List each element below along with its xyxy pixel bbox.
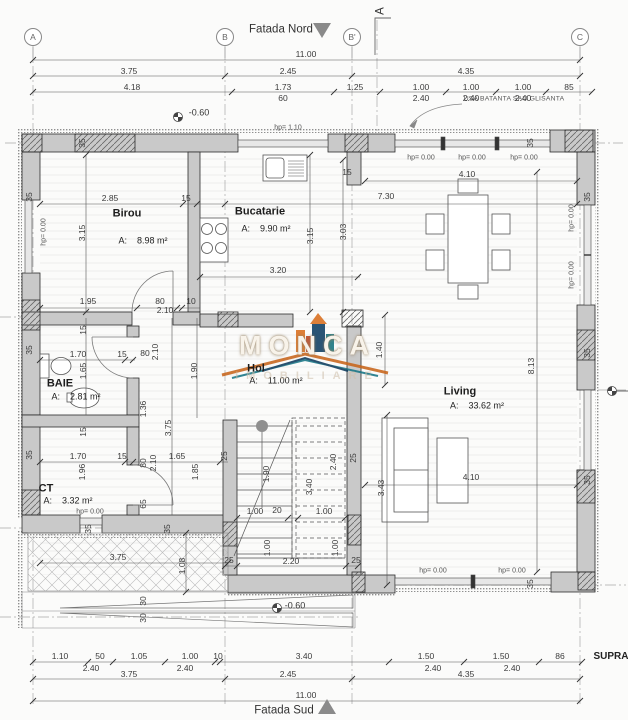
dining-table [448,195,488,283]
section-bracket [375,18,391,55]
door-note-leader [410,104,462,128]
coffee-table [437,438,468,503]
toilet-tank [40,354,49,378]
floor-plan-page: Fatada NordFatada SudSUPRAABB'CAUSA BATA… [0,0,628,720]
bathroom-sink [69,388,99,408]
floor-plan-drawing [0,0,628,720]
north-arrow-icon [313,23,331,38]
chair [458,285,478,299]
bubble-leader-lines [33,45,580,60]
chair [426,250,444,270]
chair [426,214,444,234]
stair-start-post [256,420,268,432]
chair [492,214,510,234]
chair [492,250,510,270]
